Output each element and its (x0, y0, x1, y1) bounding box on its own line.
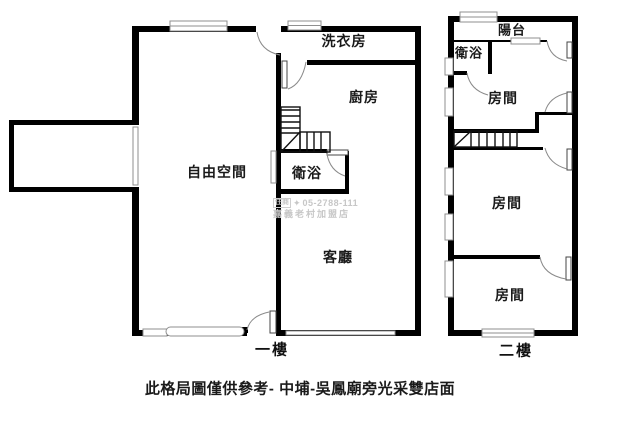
room-label-living: 客廳 (323, 247, 353, 267)
floor1-door-leaves (270, 61, 348, 333)
realtor-watermark: 住商 ✦ 05-2788-111 嘉義老村加盟店 (273, 198, 377, 220)
plan-caption: 此格局圖僅供參考- 中埔-吳鳳廟旁光采雙店面 (145, 378, 455, 399)
room-label-free-space: 自由空間 (187, 162, 247, 182)
floor2-door-leaves (566, 42, 572, 280)
room-label-laundry: 洗衣房 (322, 31, 367, 51)
room-label-room3: 房間 (495, 285, 525, 305)
brand-logo-icon: ✦ (293, 198, 301, 208)
room-label-bathroom-f1: 衛浴 (292, 163, 322, 183)
floor1-stairs (281, 107, 330, 152)
room-label-kitchen: 廚房 (349, 87, 379, 107)
room-label-balcony: 陽台 (498, 20, 526, 39)
floor2-stairs (454, 131, 517, 147)
floor2-label: 二樓 (499, 340, 533, 361)
floor1-label: 一樓 (255, 339, 289, 360)
room-label-room2: 房間 (492, 193, 522, 213)
watermark-store: 嘉義老村加盟店 (273, 209, 377, 219)
watermark-brand: 住商 (273, 198, 291, 208)
room-label-room1: 房間 (488, 88, 518, 108)
watermark-phone: 05-2788-111 (303, 198, 359, 208)
room-label-bathroom-f2: 衛浴 (455, 43, 483, 62)
floor-plan-stage: 洗衣房 廚房 自由空間 衛浴 客廳 陽台 衛浴 房間 房間 房間 一樓 二樓 住… (0, 0, 640, 424)
floor2-door-arcs (467, 41, 567, 279)
floor1-windows (133, 21, 395, 336)
